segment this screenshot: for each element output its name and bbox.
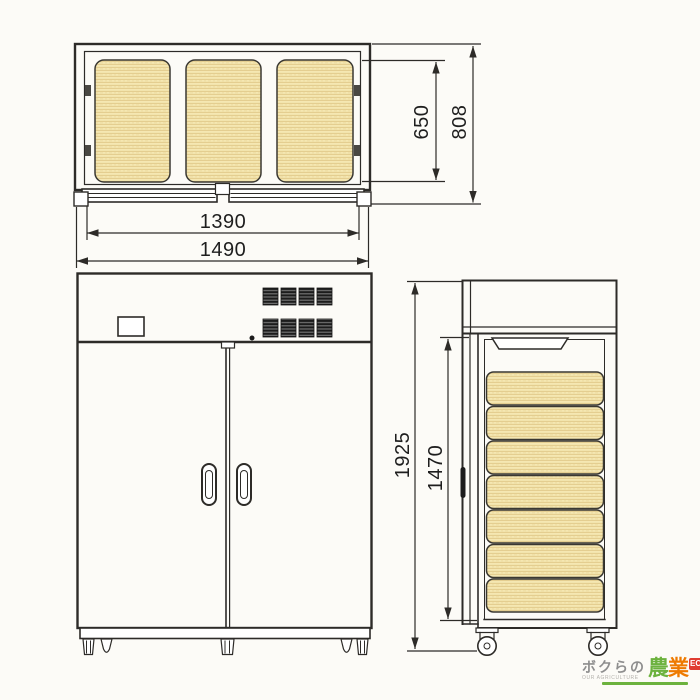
front-foot-4 <box>341 639 352 652</box>
dim-plan-inner-depth: 650 <box>362 61 445 182</box>
drawing-canvas: 1390 1490 650 808 <box>0 0 700 700</box>
dim-label-650: 650 <box>411 105 433 140</box>
plan-sack-3 <box>277 60 353 182</box>
side-sack-stack <box>487 372 604 612</box>
side-evaporator-tray <box>492 338 568 349</box>
plan-sack-2 <box>186 60 261 182</box>
plan-sack-1 <box>95 60 170 182</box>
plan-door-assembly <box>74 184 371 207</box>
dim-label-1925: 1925 <box>392 432 414 479</box>
side-sack-2 <box>487 407 604 440</box>
technical-drawing: 1390 1490 650 808 <box>0 0 700 700</box>
plan-hinge-right-bottom <box>354 145 360 156</box>
side-sack-1 <box>487 372 604 405</box>
side-view: 1925 1470 <box>392 281 617 656</box>
front-door-seam-cap <box>222 342 235 348</box>
brand-underline <box>602 682 688 685</box>
brand-mark-char-green: 農 <box>648 657 669 681</box>
front-door-handle-left <box>202 464 216 505</box>
dim-label-808: 808 <box>449 105 471 140</box>
front-feet <box>83 639 368 655</box>
brand-mark-char-orange: 業 <box>668 657 689 681</box>
side-sack-5 <box>487 510 604 543</box>
plan-center-latch <box>216 184 230 195</box>
plan-hinge-right-top <box>354 85 360 96</box>
brand-ec-badge: EC <box>689 658 700 670</box>
front-vent-grid <box>263 288 332 337</box>
side-machine-compartment <box>463 281 617 334</box>
side-caster-rear <box>587 628 609 655</box>
front-foot-2 <box>101 639 112 652</box>
plan-hinge-left-top <box>85 85 91 96</box>
dim-label-1390: 1390 <box>200 211 247 233</box>
dim-plan-inner-width: 1390 <box>87 206 359 240</box>
front-view <box>78 274 372 655</box>
brand-text-block: ボクらの OUR AGRICULTURE <box>582 659 646 681</box>
front-foot-1 <box>83 639 94 655</box>
front-foot-3 <box>221 639 234 655</box>
front-foot-5 <box>357 639 368 655</box>
front-door-handle-right <box>237 464 251 505</box>
side-sack-6 <box>487 545 604 578</box>
brand-logo: ボクらの OUR AGRICULTURE 農 業 EC <box>582 659 700 685</box>
plan-view: 1390 1490 650 808 <box>74 44 481 268</box>
brand-mark: 農 業 EC <box>648 657 700 681</box>
front-sensor-dot <box>250 336 255 341</box>
front-doors <box>202 342 251 628</box>
brand-name-ja: ボクらの <box>582 659 646 675</box>
side-door-handle <box>461 467 466 498</box>
side-caster-front <box>476 628 498 655</box>
side-sack-3 <box>487 441 604 474</box>
plan-hinge-left-bottom <box>85 145 91 156</box>
side-sack-4 <box>487 476 604 509</box>
dim-side-interior-height: 1470 <box>425 338 477 621</box>
dim-label-1490: 1490 <box>200 239 247 261</box>
front-control-display <box>118 317 144 336</box>
front-base-band <box>80 628 370 639</box>
side-sack-7 <box>487 579 604 612</box>
brand-name-en: OUR AGRICULTURE <box>582 675 646 681</box>
dim-label-1470: 1470 <box>425 445 447 492</box>
